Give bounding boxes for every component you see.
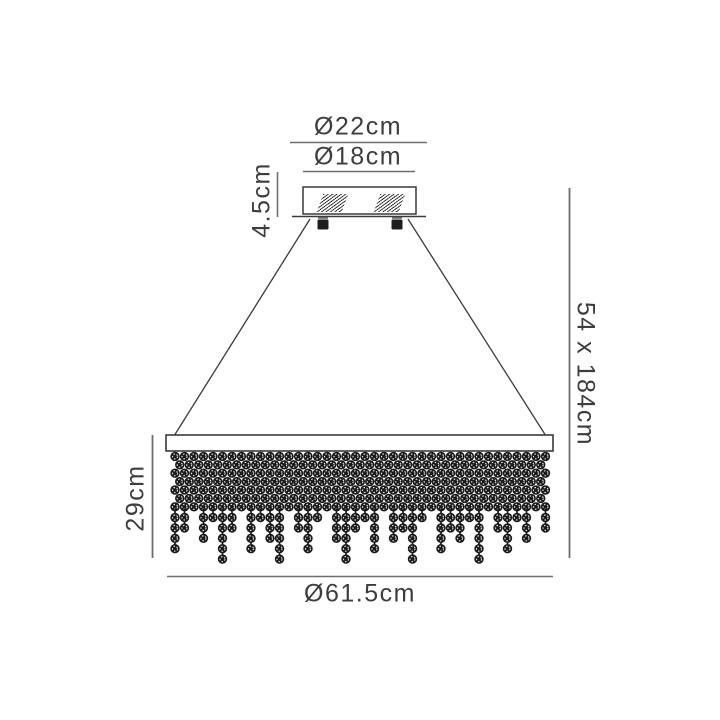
fixture-line-drawing	[0, 0, 720, 720]
label-canopy-height: 4.5cm	[250, 162, 275, 238]
pendant-light-dimension-diagram: Ø22cm Ø18cm 4.5cm 29cm 54 x 184cm Ø61.5c…	[0, 0, 720, 720]
cable-connector-left	[318, 220, 329, 230]
label-shade-height: 29cm	[124, 464, 149, 531]
suspension-wire-right	[408, 219, 546, 436]
label-canopy-inner-diameter: Ø18cm	[314, 145, 402, 170]
crystal-bead-curtain	[170, 452, 550, 564]
cable-connector-right	[392, 220, 403, 230]
label-shade-diameter: Ø61.5cm	[304, 582, 416, 607]
fixture-frame-bar	[166, 435, 553, 451]
suspension-wire-left	[174, 219, 310, 436]
label-overall-size: 54 x 184cm	[573, 302, 598, 446]
label-canopy-outer-diameter: Ø22cm	[314, 115, 402, 140]
